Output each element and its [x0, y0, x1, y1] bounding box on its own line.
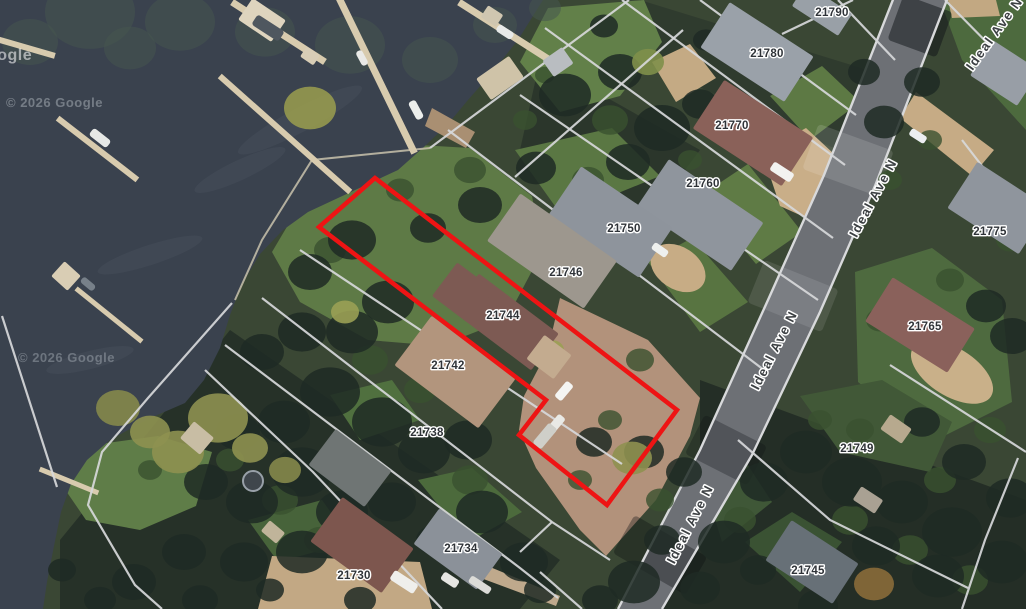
- shrub: [331, 301, 359, 324]
- tree-canopy: [568, 470, 592, 490]
- address-label: 21775: [973, 226, 1007, 238]
- tree-canopy: [458, 187, 502, 223]
- tree-canopy: [256, 579, 284, 602]
- tree-canopy: [444, 420, 492, 459]
- tree-canopy: [220, 542, 268, 581]
- address-label: 21760: [686, 178, 719, 190]
- address-label: 21765: [908, 321, 942, 333]
- shrub: [269, 457, 301, 483]
- tree-canopy: [516, 152, 556, 185]
- address-label: 21730: [337, 570, 370, 582]
- shrub: [232, 433, 268, 463]
- tree-canopy: [936, 269, 964, 292]
- tree-canopy: [740, 462, 788, 501]
- tree-canopy: [780, 431, 832, 474]
- tree-canopy: [258, 401, 310, 444]
- tree-canopy: [912, 555, 964, 598]
- tree-canopy: [942, 444, 986, 480]
- tree-canopy: [876, 481, 928, 524]
- tree-canopy: [846, 419, 874, 442]
- satellite-map-viewport[interactable]: Ideal Ave NIdeal Ave NIdeal Ave NIdeal A…: [0, 0, 1026, 609]
- tree-canopy: [698, 521, 750, 564]
- water-weeds: [104, 27, 156, 70]
- tree-canopy: [278, 312, 326, 351]
- address-label: 21770: [715, 120, 748, 132]
- tree-canopy: [666, 457, 702, 487]
- tree-canopy: [864, 106, 904, 139]
- address-label: 21780: [750, 48, 783, 60]
- copyright-watermark: © 2026 Google: [6, 95, 103, 110]
- tree-canopy: [288, 254, 332, 290]
- tree-canopy: [678, 150, 702, 170]
- shrub: [96, 390, 140, 426]
- address-label: 21746: [549, 267, 582, 279]
- tree-canopy: [539, 74, 591, 117]
- tree-canopy: [852, 526, 900, 565]
- tree-canopy: [598, 410, 622, 430]
- address-label: 21790: [815, 7, 848, 19]
- driveway: [948, 0, 1000, 18]
- tree-canopy: [904, 67, 940, 97]
- tree-canopy: [592, 105, 628, 135]
- shrub: [284, 87, 336, 130]
- map-canvas[interactable]: Ideal Ave NIdeal Ave NIdeal Ave NIdeal A…: [0, 0, 1026, 609]
- address-label: 21750: [607, 223, 640, 235]
- shrub: [130, 416, 170, 449]
- tree-canopy: [646, 489, 674, 512]
- tree-canopy: [966, 290, 1006, 323]
- copyright-watermark: © 2026 Google: [18, 350, 115, 365]
- address-label: 21742: [431, 360, 464, 372]
- tree-canopy: [680, 572, 720, 605]
- tree-canopy: [454, 157, 486, 183]
- tree-canopy: [606, 144, 650, 180]
- address-label: 21749: [840, 443, 873, 455]
- tree-canopy: [576, 427, 612, 457]
- tree-canopy: [48, 559, 76, 582]
- fire-pit: [243, 471, 263, 491]
- tree-canopy: [848, 59, 880, 85]
- tree-canopy: [162, 534, 206, 570]
- address-label: 21745: [791, 565, 825, 577]
- tree-canopy: [922, 507, 982, 556]
- tree-canopy: [352, 397, 412, 446]
- water-weeds: [402, 37, 458, 83]
- address-label: 21738: [410, 427, 444, 439]
- address-label: 21744: [486, 310, 520, 322]
- tree-canopy: [808, 410, 832, 430]
- tree-canopy: [240, 334, 284, 370]
- tree-canopy: [626, 349, 654, 372]
- address-label: 21734: [444, 543, 478, 555]
- shrub: [854, 568, 894, 601]
- google-logo-watermark: Google: [0, 47, 32, 64]
- tree-canopy: [513, 110, 537, 130]
